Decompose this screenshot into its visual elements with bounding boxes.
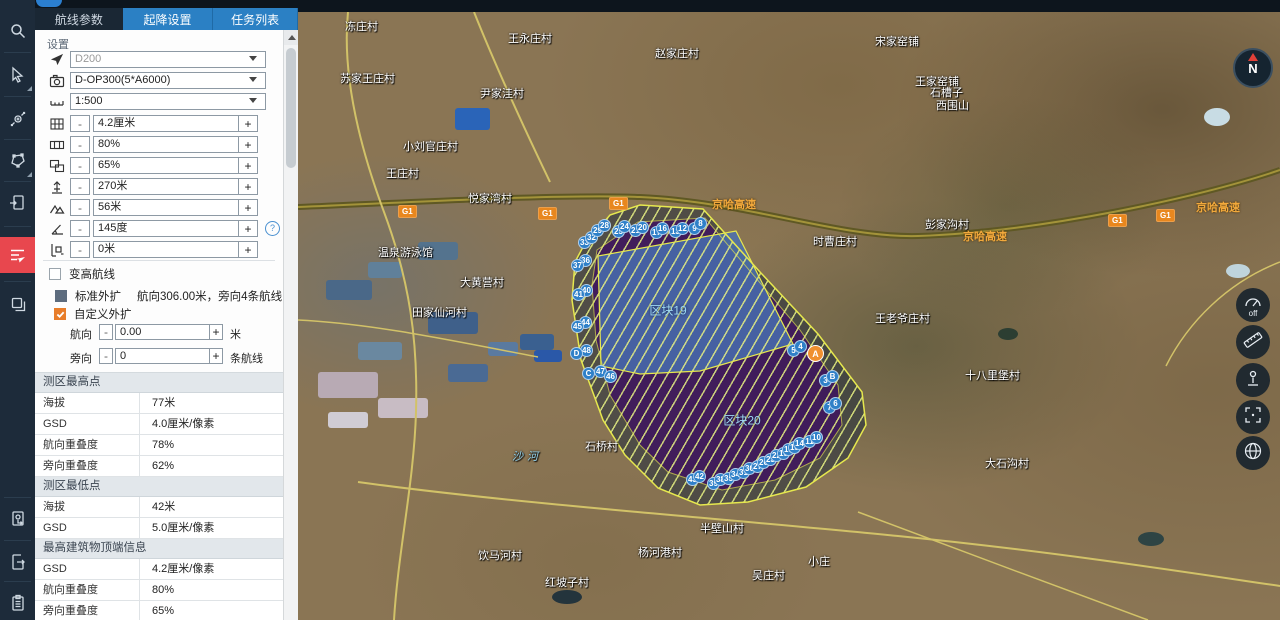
row-label: 海拔 bbox=[35, 497, 140, 517]
search-tool[interactable] bbox=[0, 12, 35, 50]
ruler-icon bbox=[1242, 329, 1264, 356]
forward-overlap-icon bbox=[48, 136, 65, 153]
custom-expand-row: 自定义外扩 bbox=[35, 306, 283, 322]
panel-tabs: 航线参数 起降设置 任务列表 bbox=[35, 8, 298, 30]
table-row: 海拔42米 bbox=[35, 497, 283, 518]
section-header: 测区最高点 bbox=[35, 373, 283, 393]
village-label: 十八里堡村 bbox=[965, 367, 1020, 383]
base-layers-button[interactable] bbox=[1236, 436, 1270, 470]
waypoint-badge[interactable]: D bbox=[570, 347, 583, 360]
compass-control[interactable]: N bbox=[1233, 48, 1273, 88]
move-point-icon bbox=[9, 110, 27, 128]
road-number-badge: G1 bbox=[609, 197, 628, 210]
table-row: 航向重叠度78% bbox=[35, 435, 283, 456]
table-row: GSD4.2厘米/像素 bbox=[35, 559, 283, 580]
village-label: 大石沟村 bbox=[985, 455, 1029, 471]
app-logo bbox=[36, 0, 62, 7]
village-label: 田家仙河村 bbox=[412, 304, 467, 320]
divider bbox=[43, 260, 275, 261]
app-window: 航线参数 起降设置 任务列表 设置 D200 D-OP300(5*A6000) … bbox=[0, 0, 1280, 620]
search-icon bbox=[9, 22, 27, 40]
tool-sidebar bbox=[0, 0, 35, 620]
village-label: 饮马河村 bbox=[478, 547, 522, 563]
margin-plus-button[interactable]: + bbox=[238, 241, 258, 258]
north-arrow-icon bbox=[1248, 53, 1258, 61]
doc-location-icon bbox=[9, 510, 27, 528]
standard-expand-label: 标准外扩 bbox=[75, 288, 121, 304]
chevron-down-icon bbox=[249, 98, 257, 103]
side-minus-button[interactable]: - bbox=[99, 348, 113, 364]
scroll-up-button[interactable] bbox=[284, 30, 299, 45]
village-label: 半壁山村 bbox=[700, 520, 744, 536]
layers-tool[interactable] bbox=[0, 285, 35, 323]
waypoint-badge[interactable]: B bbox=[826, 370, 839, 383]
measure-button[interactable] bbox=[1236, 325, 1270, 359]
forward-overlap-value[interactable]: 80% bbox=[93, 136, 240, 153]
course-input[interactable]: 0.00 bbox=[115, 324, 213, 340]
custom-expand-checkbox[interactable] bbox=[54, 308, 66, 320]
village-label: 红坡子村 bbox=[545, 574, 589, 590]
gsd-minus-button[interactable]: - bbox=[70, 115, 90, 132]
compass-mode-label: off bbox=[1249, 310, 1258, 317]
gsd-icon bbox=[48, 115, 65, 132]
altitude-stepper: - 270米 + bbox=[35, 178, 283, 195]
aircraft-icon bbox=[48, 51, 65, 68]
table-row: 旁向重叠度65% bbox=[35, 601, 283, 620]
globe-icon bbox=[1243, 441, 1263, 466]
section-header: 最高建筑物顶端信息 bbox=[35, 539, 283, 559]
village-label: 赵家庄村 bbox=[655, 45, 699, 61]
water-label: 沙河 bbox=[512, 448, 542, 464]
village-label: 宋家窑铺 bbox=[875, 33, 919, 49]
tab-takeoff-settings[interactable]: 起降设置 bbox=[123, 8, 214, 30]
course-label: 航向 bbox=[70, 326, 92, 342]
street-view-button[interactable] bbox=[1236, 363, 1270, 397]
village-label: 西围山 bbox=[936, 97, 969, 113]
row-label: GSD bbox=[35, 414, 140, 434]
village-label: 吴庄村 bbox=[752, 567, 785, 583]
relative-height-plus-button[interactable]: + bbox=[238, 199, 258, 216]
village-label: 尹家洼村 bbox=[480, 85, 524, 101]
side-plus-button[interactable]: + bbox=[209, 348, 223, 364]
custom-expand-label: 自定义外扩 bbox=[74, 306, 132, 322]
table-row: 海拔77米 bbox=[35, 393, 283, 414]
relative-height-minus-button[interactable]: - bbox=[70, 199, 90, 216]
road-number-badge: G1 bbox=[538, 207, 557, 220]
row-label: GSD bbox=[35, 518, 140, 538]
side-expand-row: 旁向 - 0 + 条航线 bbox=[35, 348, 283, 364]
altitude-minus-button[interactable]: - bbox=[70, 178, 90, 195]
move-point-tool[interactable] bbox=[0, 100, 35, 138]
dashed-frame-icon bbox=[1244, 406, 1262, 429]
variable-height-row: 变高航线 bbox=[35, 266, 283, 282]
margin-stepper: - 0米 + bbox=[35, 241, 283, 258]
side-overlap-value[interactable]: 65% bbox=[93, 157, 240, 174]
polygon-icon bbox=[9, 152, 27, 170]
row-value: 80% bbox=[140, 580, 174, 600]
side-input[interactable]: 0 bbox=[115, 348, 213, 364]
relative-height-value[interactable]: 56米 bbox=[93, 199, 240, 216]
camera-icon bbox=[48, 72, 65, 89]
altitude-value[interactable]: 270米 bbox=[93, 178, 240, 195]
export-file-tool[interactable] bbox=[0, 543, 35, 581]
side-overlap-stepper: - 65% + bbox=[35, 157, 283, 174]
course-minus-button[interactable]: - bbox=[99, 324, 113, 340]
waypoint-badge[interactable]: 16 bbox=[656, 222, 669, 235]
section-header: 测区最低点 bbox=[35, 477, 283, 497]
scrollbar-thumb[interactable] bbox=[286, 48, 296, 168]
clipboard-list-icon bbox=[9, 594, 27, 612]
side-overlap-minus-button[interactable]: - bbox=[70, 157, 90, 174]
gsd-value[interactable]: 4.2厘米 bbox=[93, 115, 240, 132]
panel-scrollbar[interactable] bbox=[283, 30, 298, 620]
road-number-badge: G1 bbox=[398, 205, 417, 218]
course-plus-button[interactable]: + bbox=[209, 324, 223, 340]
road-number-badge: G1 bbox=[1108, 214, 1127, 227]
route-plan-tool[interactable] bbox=[0, 237, 35, 273]
row-label: 旁向重叠度 bbox=[35, 456, 140, 476]
variable-height-label: 变高航线 bbox=[69, 266, 115, 282]
submenu-indicator bbox=[27, 172, 32, 177]
altitude-plus-button[interactable]: + bbox=[238, 178, 258, 195]
layers-icon bbox=[9, 295, 27, 313]
standard-expand-swatch[interactable] bbox=[55, 290, 67, 302]
village-label: 王庄村 bbox=[386, 165, 419, 181]
waypoint-badge[interactable]: 6 bbox=[829, 397, 842, 410]
tab-task-list[interactable]: 任务列表 bbox=[213, 8, 298, 30]
aircraft-row: D200 bbox=[35, 51, 283, 68]
village-label: 王老爷庄村 bbox=[875, 310, 930, 326]
waypoint-badge[interactable]: 28 bbox=[598, 219, 611, 232]
road-label: 京哈高速 bbox=[963, 228, 1007, 244]
row-value: 5.0厘米/像素 bbox=[140, 518, 214, 538]
compass-mode-button[interactable]: off bbox=[1236, 288, 1270, 322]
course-unit: 米 bbox=[230, 326, 241, 342]
terrain-height-icon bbox=[48, 199, 65, 216]
row-value: 77米 bbox=[140, 393, 175, 413]
course-angle-value[interactable]: 145度 bbox=[93, 220, 240, 237]
import-file-icon bbox=[9, 194, 27, 212]
village-label: 小庄 bbox=[808, 553, 830, 569]
side-overlap-plus-button[interactable]: + bbox=[238, 157, 258, 174]
route-params-panel: 设置 D200 D-OP300(5*A6000) 1:500 - 4.2厘米 + bbox=[35, 30, 283, 620]
waypoint-badge[interactable]: 20 bbox=[636, 221, 649, 234]
table-row: GSD4.0厘米/像素 bbox=[35, 414, 283, 435]
row-value: 4.0厘米/像素 bbox=[140, 414, 214, 434]
flight-route-icon bbox=[8, 246, 27, 265]
scale-icon bbox=[48, 93, 65, 110]
waypoint-badge[interactable]: 46 bbox=[604, 370, 617, 383]
village-label: 悦家湾村 bbox=[468, 190, 512, 206]
scale-select[interactable]: 1:500 bbox=[70, 93, 266, 110]
course-expand-row: 航向 - 0.00 + 米 bbox=[35, 324, 283, 340]
row-value: 62% bbox=[140, 456, 174, 476]
doc-export-icon bbox=[9, 553, 27, 571]
side-overlap-icon bbox=[48, 157, 65, 174]
row-value: 42米 bbox=[140, 497, 175, 517]
relative-height-stepper: - 56米 + bbox=[35, 199, 283, 216]
margin-value[interactable]: 0米 bbox=[93, 241, 240, 258]
village-label: 温泉游泳馆 bbox=[378, 244, 433, 260]
gsd-plus-button[interactable]: + bbox=[238, 115, 258, 132]
table-row: 航向重叠度80% bbox=[35, 580, 283, 601]
village-label: 杨河港村 bbox=[638, 544, 682, 560]
camera-row: D-OP300(5*A6000) bbox=[35, 72, 283, 89]
angle-icon bbox=[48, 220, 65, 237]
chevron-down-icon bbox=[249, 56, 257, 61]
tab-route-params[interactable]: 航线参数 bbox=[35, 8, 123, 30]
waypoint-badge[interactable]: 45 bbox=[571, 320, 584, 333]
waypoint-badge[interactable]: 8 bbox=[694, 217, 707, 230]
row-label: 航向重叠度 bbox=[35, 435, 140, 455]
waypoint-badge[interactable]: 37 bbox=[571, 259, 584, 272]
map-viewport[interactable]: 区块19区块20 冻庄村赵家庄村王永庄村苏家王庄村尹家洼村小刘官庄村王庄村悦家湾… bbox=[298, 12, 1280, 620]
cursor-icon bbox=[9, 66, 27, 84]
village-label: 时曹庄村 bbox=[813, 233, 857, 249]
village-label: 冻庄村 bbox=[345, 18, 378, 34]
village-label: 石桥村 bbox=[585, 438, 618, 454]
draw-polygon-tool[interactable] bbox=[0, 142, 35, 180]
waypoint-badge[interactable]: 10 bbox=[810, 431, 823, 444]
settings-label: 设置 bbox=[47, 36, 69, 52]
block-label: 区块19 bbox=[649, 302, 686, 319]
forward-overlap-plus-button[interactable]: + bbox=[238, 136, 258, 153]
village-label: 苏家王庄村 bbox=[340, 70, 395, 86]
select-tool[interactable] bbox=[0, 56, 35, 94]
standard-expand-info: 航向306.00米，旁向4条航线 bbox=[137, 288, 282, 304]
road-label: 京哈高速 bbox=[712, 196, 756, 212]
help-icon[interactable]: ? bbox=[265, 221, 280, 236]
row-value: 4.2厘米/像素 bbox=[140, 559, 214, 579]
table-row: GSD5.0厘米/像素 bbox=[35, 518, 283, 539]
altitude-icon bbox=[48, 178, 65, 195]
forward-overlap-minus-button[interactable]: - bbox=[70, 136, 90, 153]
course-angle-stepper: - 145度 + ? bbox=[35, 220, 283, 237]
scale-row: 1:500 bbox=[35, 93, 283, 110]
side-label: 旁向 bbox=[70, 350, 92, 366]
chevron-down-icon bbox=[249, 77, 257, 82]
triangle-up-icon bbox=[288, 35, 296, 40]
info-tables: 测区最高点海拔77米GSD4.0厘米/像素航向重叠度78%旁向重叠度62%测区最… bbox=[35, 372, 283, 620]
waypoint-badge[interactable]: C bbox=[582, 367, 595, 380]
village-label: 王永庄村 bbox=[508, 30, 552, 46]
road-number-badge: G1 bbox=[1156, 209, 1175, 222]
village-label: 大黄营村 bbox=[460, 274, 504, 290]
home-point-marker[interactable]: A bbox=[807, 345, 824, 362]
village-label: 小刘官庄村 bbox=[403, 138, 458, 154]
side-unit: 条航线 bbox=[230, 350, 263, 366]
waypoint-badge[interactable]: 42 bbox=[693, 470, 706, 483]
row-label: 航向重叠度 bbox=[35, 580, 140, 600]
table-row: 旁向重叠度62% bbox=[35, 456, 283, 477]
compass-north-label: N bbox=[1235, 61, 1271, 76]
course-angle-plus-button[interactable]: + bbox=[238, 220, 258, 237]
standard-expand-row: 标准外扩 航向306.00米，旁向4条航线 bbox=[35, 288, 283, 304]
camera-select[interactable]: D-OP300(5*A6000) bbox=[70, 72, 266, 89]
margin-icon bbox=[48, 241, 65, 258]
variable-height-checkbox[interactable] bbox=[49, 268, 61, 280]
waypoint-badge[interactable]: 4 bbox=[794, 340, 807, 353]
gsd-stepper: - 4.2厘米 + bbox=[35, 115, 283, 132]
row-label: 旁向重叠度 bbox=[35, 601, 140, 620]
course-angle-minus-button[interactable]: - bbox=[70, 220, 90, 237]
waypoint-badge[interactable]: 41 bbox=[572, 288, 585, 301]
select-extent-button[interactable] bbox=[1236, 400, 1270, 434]
row-label: GSD bbox=[35, 559, 140, 579]
road-label: 京哈高速 bbox=[1196, 199, 1240, 215]
submenu-indicator bbox=[27, 86, 32, 91]
task-report-tool[interactable] bbox=[0, 584, 35, 620]
row-label: 海拔 bbox=[35, 393, 140, 413]
aircraft-select[interactable]: D200 bbox=[70, 51, 266, 68]
margin-minus-button[interactable]: - bbox=[70, 241, 90, 258]
row-value: 65% bbox=[140, 601, 174, 620]
import-file-tool[interactable] bbox=[0, 184, 35, 222]
forward-overlap-stepper: - 80% + bbox=[35, 136, 283, 153]
row-value: 78% bbox=[140, 435, 174, 455]
location-pin-icon bbox=[1244, 368, 1262, 393]
export-points-tool[interactable] bbox=[0, 500, 35, 538]
block-label: 区块20 bbox=[723, 412, 760, 429]
